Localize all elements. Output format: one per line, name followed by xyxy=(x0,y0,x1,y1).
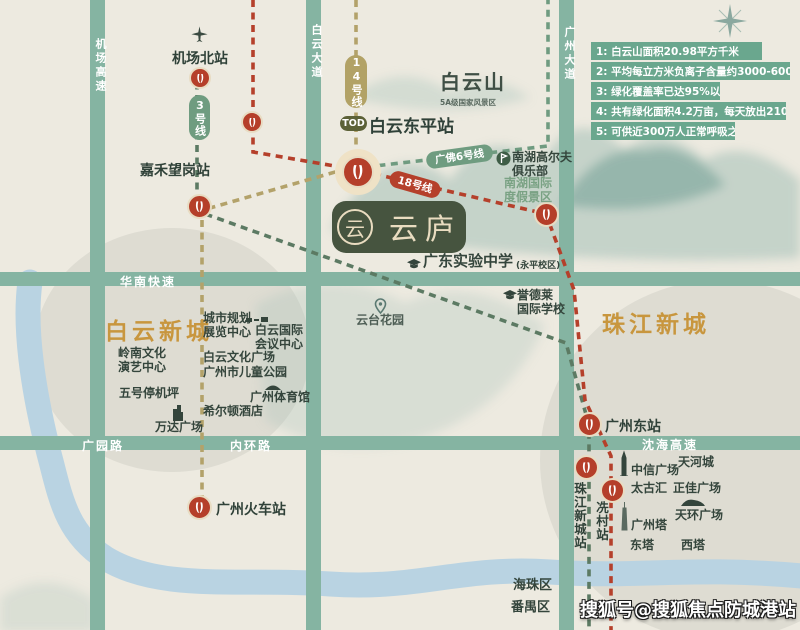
label-teemall: 天河城 xyxy=(678,456,714,470)
station-label-jiahewanggang: 嘉禾望岗站 xyxy=(140,160,210,180)
label-baiyun-convention-center: 白云国际 会议中心 xyxy=(255,324,303,351)
road-label-guangzhou-ave: 广州大道 xyxy=(561,26,577,82)
label-urban-planning-hall: 城市规划 展览中心 xyxy=(203,312,251,339)
label-haizhu-district: 海珠区 xyxy=(513,579,552,593)
label-experimental-school-campus: (永平校区) xyxy=(516,260,560,274)
canton-tower-icon xyxy=(619,502,630,531)
location-pin-icon xyxy=(374,298,387,314)
area-title-baiyun-new-town: 白云新城 xyxy=(105,312,213,346)
label-helipad-no5: 五号停机坪 xyxy=(119,387,179,401)
badge-line-guangfo-6: 广佛6号线 xyxy=(425,143,494,169)
conference-center-icon xyxy=(246,315,268,323)
label-nanhu-golf-club: 南湖高尔夫 俱乐部 xyxy=(512,151,572,178)
label-baiyun-culture-square: 白云文化广场 xyxy=(203,351,275,365)
label-wanda-plaza: 万达广场 xyxy=(155,421,203,435)
station-xiancun-icon xyxy=(600,478,625,503)
label-baiyun-mountain-sub: 5A级国家风景区 xyxy=(440,96,496,110)
airplane-icon xyxy=(190,25,209,44)
label-panyu-district: 番禺区 xyxy=(511,601,550,615)
station-label-jichangbei: 机场北站 xyxy=(160,48,240,68)
station-project-icon xyxy=(342,156,374,188)
golf-flag-icon xyxy=(496,151,511,166)
station-label-guangzhou-railway: 广州火车站 xyxy=(216,499,286,519)
road-airport-expressway xyxy=(90,0,105,630)
station-line18-icon xyxy=(241,111,263,133)
metro-line-14 xyxy=(210,0,356,208)
watermark: 搜狐号@搜狐焦点防城港站 xyxy=(580,596,796,622)
label-gymnasium: 广州体育馆 xyxy=(250,391,310,405)
station-label-xiancun: 冼村站 xyxy=(592,501,611,542)
label-yudelai-school: 誉德莱 国际学校 xyxy=(517,289,565,316)
station-label-baiyundongping: 白云东平站 xyxy=(369,112,454,137)
road-label-huanan-expwy: 华南快速 xyxy=(120,273,176,290)
badge-tod: TOD xyxy=(340,116,367,131)
road-label-shenhai-expwy: 沈海高速 xyxy=(642,436,698,453)
graduation-cap-icon xyxy=(407,259,421,270)
label-children-park: 广州市儿童公园 xyxy=(203,366,287,380)
label-hilton-hotel: 希尔顿酒店 xyxy=(203,405,263,419)
legend-item: 1: 白云山面积20.98平方千米 xyxy=(591,42,762,60)
station-label-guangzhoudong: 广州东站 xyxy=(605,416,661,436)
station-label-zhujiangxincheng: 珠江新城站 xyxy=(570,482,589,550)
label-citic-plaza: 中信广场 xyxy=(631,464,679,478)
compass-icon xyxy=(711,2,749,40)
road-baiyun-avenue xyxy=(306,0,321,630)
label-canton-tower: 广州塔 xyxy=(631,519,667,533)
road-label-baiyun-ave: 白云大道 xyxy=(308,24,324,80)
legend-item: 5: 可供近300万人正常呼吸之用 xyxy=(591,122,735,140)
station-guangzhou-railway-icon xyxy=(187,495,212,520)
road-label-guangyuan-rd: 广园路 xyxy=(82,437,124,454)
label-experimental-school: 广东实验中学 xyxy=(423,255,513,269)
station-guangzhoudong-icon xyxy=(577,412,602,437)
tower-icon xyxy=(618,450,630,476)
label-tianhuan-plaza: 天环广场 xyxy=(675,509,723,523)
road-label-airport-expwy: 机场高速 xyxy=(92,38,108,94)
building-icon xyxy=(680,496,706,507)
label-baiyun-mountain: 白云山 xyxy=(440,76,506,90)
area-title-zhujiang-new-town: 珠江新城 xyxy=(602,305,710,339)
project-logo: 云 云庐 xyxy=(332,201,466,253)
legend-item: 2: 平均每立方米负离子含量约3000-6000个 xyxy=(591,62,790,80)
building-icon xyxy=(171,404,185,421)
badge-line-3: 3号线 xyxy=(189,95,210,140)
legend-item: 3: 绿化覆盖率已达95%以上 xyxy=(591,82,720,100)
label-west-tower: 西塔 xyxy=(681,539,705,553)
legend-item: 4: 共有绿化面积4.2万亩，每天放出2100吨氧气， xyxy=(591,102,786,120)
station-nanhu-icon xyxy=(534,202,559,227)
label-nanhu-resort: 南湖国际 度假景区 xyxy=(504,177,552,204)
road-label-neihuan-rd: 内环路 xyxy=(230,437,272,454)
label-east-tower: 东塔 xyxy=(630,539,654,553)
badge-line-18: 18号线 xyxy=(388,169,443,200)
label-yuntai-garden: 云台花园 xyxy=(356,314,404,328)
tourist-map: 机场高速 白云大道 广州大道 华南快速 广园路 内环路 沈海高速 1: 白云山面… xyxy=(0,0,800,630)
logo-name: 云庐 xyxy=(382,206,461,248)
label-grandview-mall: 正佳广场 xyxy=(673,482,721,496)
station-jiahewanggang-icon xyxy=(187,194,212,219)
graduation-cap-icon xyxy=(503,290,517,301)
legend: 1: 白云山面积20.98平方千米 2: 平均每立方米负离子含量约3000-60… xyxy=(591,42,790,140)
label-taikoo-hui: 太古汇 xyxy=(631,482,667,496)
station-jichangbei-icon xyxy=(189,67,211,89)
station-zhujiangxincheng-icon xyxy=(574,455,599,480)
logo-seal-icon: 云 xyxy=(337,209,373,245)
badge-line-14: 14号线 xyxy=(345,55,367,108)
label-lingnan-culture-center: 岭南文化 演艺中心 xyxy=(117,347,167,374)
